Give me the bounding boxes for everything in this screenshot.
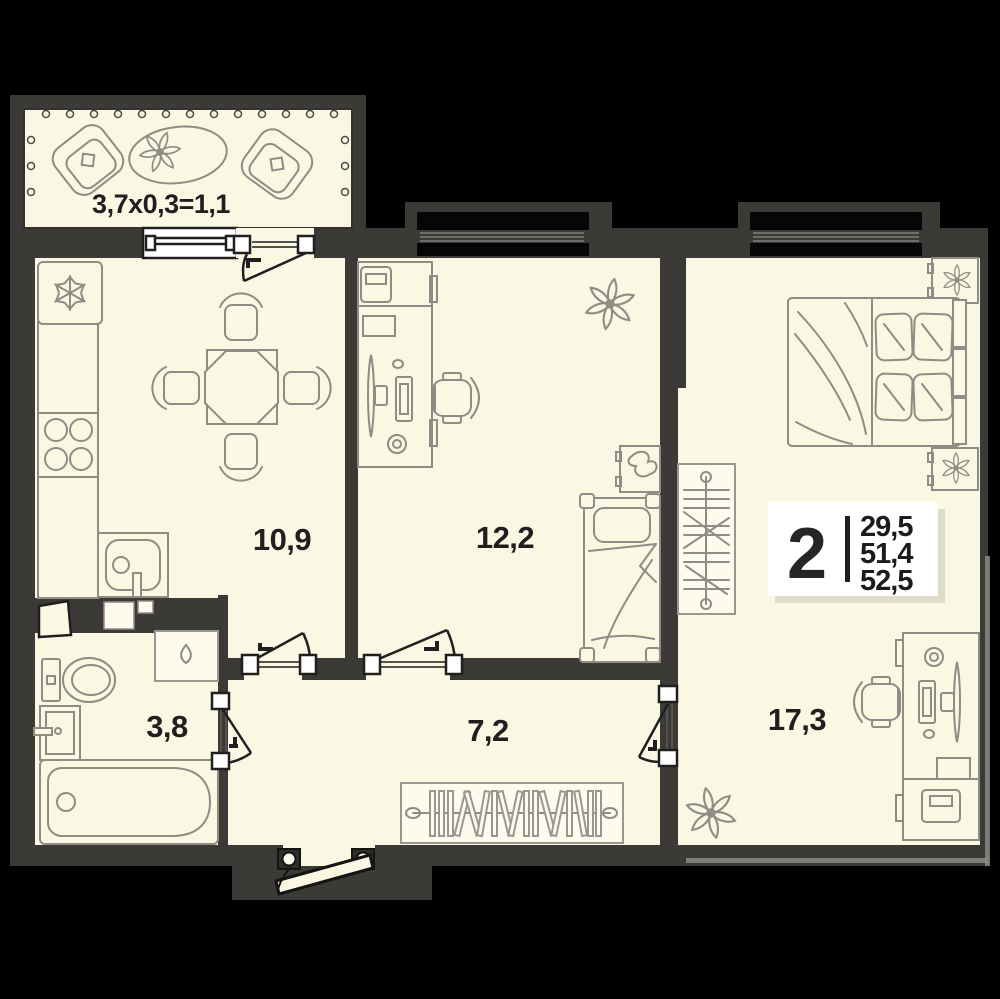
- toilet-icon: [42, 658, 115, 702]
- hallway-area-label: 7,2: [467, 713, 509, 748]
- bedroom-window: [750, 212, 922, 256]
- headboard: [953, 300, 966, 347]
- hall-wardrobe: [401, 783, 623, 843]
- single-bed: [580, 494, 660, 662]
- balcony-area-label: 3,7x0,3=1,1: [92, 189, 230, 219]
- washing-machine-icon: [155, 631, 218, 681]
- fridge-icon: [38, 262, 102, 324]
- desk: [358, 262, 437, 467]
- badge-divider: [845, 516, 850, 582]
- wardrobe: [678, 464, 735, 614]
- kitchen-sink-icon: [98, 533, 168, 597]
- kitchen-area-label: 10,9: [253, 522, 312, 557]
- floor-plan-drawing: 3,7x0,3=1,1 10,9: [0, 0, 1000, 999]
- bathroom-sink-icon: [34, 706, 80, 760]
- floor-plan-page: 3,7x0,3=1,1 10,9: [0, 0, 1000, 999]
- nightstand: [616, 446, 660, 492]
- info-badge: 2 29,5 51,4 52,5: [768, 502, 945, 603]
- badge-total-area: 52,5: [860, 565, 913, 597]
- vent-shaft: [104, 602, 134, 629]
- bedroom-desk: [896, 633, 979, 840]
- stove-icon: [38, 413, 98, 477]
- bathroom-door-leaf: [39, 601, 71, 637]
- vent-shaft-small: [138, 601, 153, 613]
- dining-table: [205, 350, 278, 424]
- nightstand-top: [928, 258, 978, 303]
- living-room-area-label: 12,2: [476, 520, 534, 555]
- bathroom-area-label: 3,8: [146, 709, 188, 744]
- badge-rooms-count: 2: [787, 514, 825, 594]
- bedroom-area-label: 17,3: [768, 702, 827, 737]
- nightstand-bottom: [928, 448, 978, 490]
- bathtub-icon: [40, 760, 218, 844]
- double-bed: [788, 298, 966, 446]
- kitchen-balcony-window: [143, 228, 237, 258]
- living-room-window: [417, 212, 589, 256]
